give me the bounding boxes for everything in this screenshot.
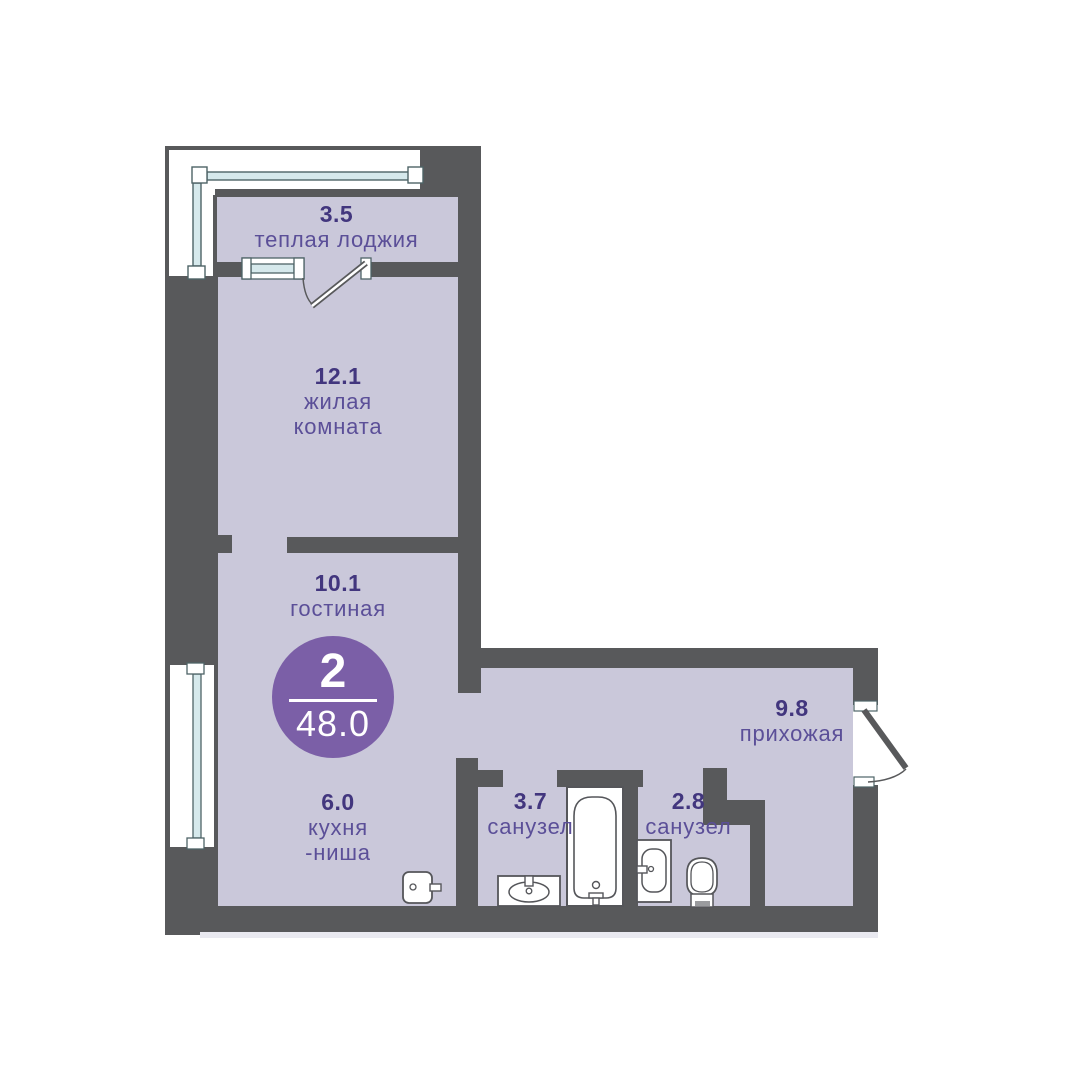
loggia-door-icon — [303, 258, 371, 306]
fixtures-layer — [0, 0, 1080, 1080]
apartment-badge: 2 48.0 — [272, 636, 394, 758]
floor-plan: 3.5 теплая лоджия 12.1 жилая комната 10.… — [0, 0, 1080, 1080]
bath2-sink-icon — [637, 840, 671, 902]
total-area: 48.0 — [272, 705, 394, 743]
left-window-icon — [170, 663, 214, 849]
kitchen-sink-icon — [403, 872, 441, 903]
badge-divider — [289, 699, 377, 702]
entrance-door-icon — [854, 701, 906, 787]
bathtub-icon — [567, 787, 623, 906]
rooms-count: 2 — [272, 636, 394, 696]
toilet-icon — [687, 858, 717, 907]
loggia-window-icon — [242, 258, 304, 279]
loggia-glazing-window-icon — [188, 167, 423, 279]
bath1-sink-icon — [498, 876, 560, 906]
